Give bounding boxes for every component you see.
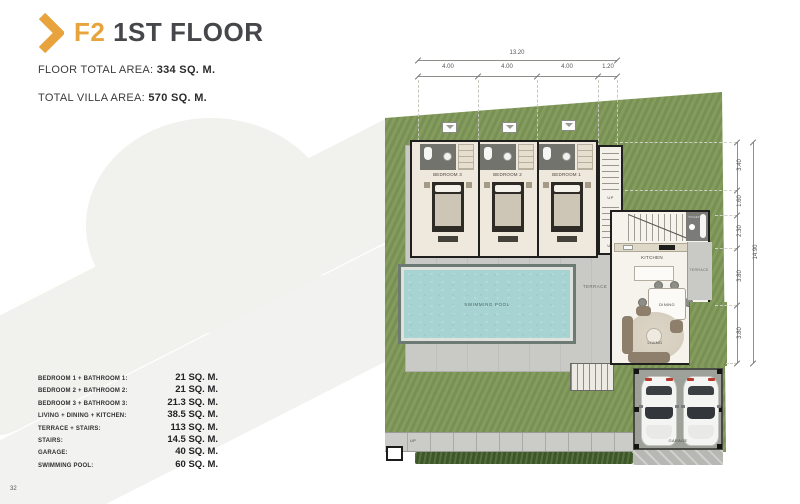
dim-segment: 4.00 [428, 64, 468, 70]
guide-line [715, 305, 737, 306]
bench [438, 236, 458, 242]
guide-line [715, 248, 737, 249]
area-label: SWIMMING POOL: [38, 463, 93, 469]
post [717, 369, 722, 374]
dim-tick [734, 360, 740, 366]
rear-window [688, 386, 714, 395]
bathroom-2 [480, 144, 516, 170]
nightstand [543, 182, 549, 188]
sink-icon [443, 152, 452, 161]
dim-line [418, 60, 617, 61]
bed [492, 182, 524, 232]
guide-line [615, 142, 737, 143]
side-mirror [717, 405, 721, 408]
dim-tick [614, 73, 620, 79]
up-label: UP [600, 195, 621, 200]
grass-patch [689, 302, 727, 366]
chevron-right-icon [38, 13, 64, 58]
garage-label: GARAGE [653, 438, 703, 443]
dim-total-height: 14.90 [753, 235, 759, 269]
area-line-value: 570 SQ. M. [148, 92, 207, 104]
dim-line [418, 76, 617, 77]
taillight [645, 378, 652, 381]
sofa [628, 352, 670, 363]
area-label: BEDROOM 1 + BATHROOM 1: [38, 376, 128, 382]
room-bedroom-1: BEDROOM 1 [537, 142, 596, 256]
pool-label: SWIMMING POOL [464, 302, 510, 307]
dim-segment: 4.00 [547, 64, 587, 70]
ac-unit-icon [442, 122, 457, 133]
entry-gate [386, 446, 403, 461]
nightstand [484, 182, 490, 188]
area-label: STAIRS: [38, 438, 63, 444]
table-row: BEDROOM 1 + BATHROOM 1:21 SQ. M. [38, 372, 218, 384]
table-row: BEDROOM 2 + BATHROOM 2:21 SQ. M. [38, 384, 218, 396]
dim-segment: 2.30 [737, 214, 743, 248]
bed [551, 182, 583, 232]
floor-total-area: FLOOR TOTAL AREA: 334 SQ. M. [38, 64, 215, 76]
post [634, 369, 639, 374]
sink-icon [503, 152, 512, 161]
table-row: SWIMMING POOL:60 SQ. M. [38, 459, 218, 471]
kitchen-sink-icon [623, 245, 633, 250]
area-value: 14.5 SQ. M. [167, 434, 218, 445]
closet [577, 144, 593, 170]
driveway [633, 450, 723, 465]
pillow [435, 185, 461, 192]
hedge [415, 452, 633, 464]
table-row: GARAGE:40 SQ. M. [38, 446, 218, 458]
kitchen-island [634, 266, 674, 281]
page-number: 32 [10, 486, 17, 492]
area-value: 21 SQ. M. [175, 372, 218, 383]
bedroom-wing: BEDROOM 3 BEDROOM 2 [410, 140, 598, 258]
area-label: BEDROOM 3 + BATHROOM 3: [38, 401, 128, 407]
sofa [622, 316, 633, 354]
nightstand [526, 182, 532, 188]
taillight [687, 378, 694, 381]
area-label: LIVING + DINING + KITCHEN: [38, 413, 127, 419]
terrace-label: TERRACE [578, 284, 612, 289]
bedroom-label: BEDROOM 1 [537, 172, 596, 177]
pillow [495, 185, 521, 192]
area-label: TERRACE + STAIRS: [38, 426, 101, 432]
sink-icon [689, 224, 695, 230]
area-table: BEDROOM 1 + BATHROOM 1:21 SQ. M. BEDROOM… [38, 372, 218, 471]
toilet-icon [543, 147, 551, 160]
room-bedroom-3: BEDROOM 3 [418, 142, 477, 256]
dim-segment: 1.20 [588, 64, 628, 70]
windshield [645, 407, 673, 419]
bathroom-1 [539, 144, 575, 170]
taillight [708, 378, 715, 381]
guide-line [617, 80, 618, 146]
sink-icon [562, 152, 571, 161]
car-top-view [683, 376, 719, 446]
bench [498, 236, 518, 242]
room-bedroom-2: BEDROOM 2 [478, 142, 537, 256]
ac-unit-icon [502, 122, 517, 133]
stair-cut-line [628, 214, 688, 239]
area-value: 38.5 SQ. M. [167, 409, 218, 420]
area-line-value: 334 SQ. M. [157, 64, 216, 76]
taillight [666, 378, 673, 381]
area-value: 40 SQ. M. [175, 446, 218, 457]
nightstand [466, 182, 472, 188]
dim-segment: 4.00 [487, 64, 527, 70]
interior-staircase [628, 214, 689, 241]
dim-segment: 3.40 [737, 148, 743, 182]
armchair [670, 320, 683, 333]
windshield [687, 407, 715, 419]
car-top-view [641, 376, 677, 446]
bathtub-icon [700, 214, 706, 238]
rear-window [646, 386, 672, 395]
area-value: 60 SQ. M. [175, 459, 218, 470]
kitchen-label: KITCHEN [614, 255, 690, 260]
side-mirror [675, 405, 679, 408]
post [634, 444, 639, 449]
pool-water: SWIMMING POOL [404, 270, 570, 338]
floor-plan: 13.20 4.00 4.00 4.00 1.20 TERRACE SWIMMI… [385, 50, 785, 484]
dim-segment: 3.80 [737, 259, 743, 293]
area-line-label: FLOOR TOTAL AREA: [38, 64, 153, 76]
ac-unit-icon [561, 120, 576, 131]
armchair [636, 306, 651, 316]
brochure-page: F2 1ST FLOOR FLOOR TOTAL AREA: 334 SQ. M… [0, 0, 800, 504]
swimming-pool: SWIMMING POOL [398, 264, 576, 344]
up-label: UP [403, 438, 423, 443]
closet [458, 144, 474, 170]
side-mirror [639, 405, 643, 408]
nightstand [585, 182, 591, 188]
bathroom-3 [420, 144, 456, 170]
hood [688, 425, 714, 439]
bedroom-label: BEDROOM 3 [418, 172, 477, 177]
dim-tick [750, 360, 756, 366]
area-value: 21.3 SQ. M. [167, 397, 218, 408]
area-value: 113 SQ. M. [170, 422, 218, 433]
dim-tick [614, 57, 620, 63]
bedroom-label: BEDROOM 2 [478, 172, 537, 177]
area-value: 21 SQ. M. [175, 384, 218, 395]
guide-line [418, 80, 419, 146]
closet [518, 144, 534, 170]
area-line-label: TOTAL VILLA AREA: [38, 92, 145, 104]
floor-code: F2 [74, 17, 105, 47]
table-row: STAIRS:14.5 SQ. M. [38, 434, 218, 446]
floor-title: 1ST FLOOR [113, 17, 263, 47]
area-label: GARAGE: [38, 450, 68, 456]
dim-segment: 1.60 [737, 184, 743, 218]
page-title: F2 1ST FLOOR [74, 17, 263, 48]
table-row: LIVING + DINING + KITCHEN:38.5 SQ. M. [38, 409, 218, 421]
kitchen-counter [614, 243, 688, 252]
terrace-label: TERRACE [686, 268, 712, 272]
guide-line [537, 80, 538, 146]
mattress [495, 194, 521, 226]
bench [557, 236, 577, 242]
table-row: TERRACE + STAIRS:113 SQ. M. [38, 422, 218, 434]
side-mirror [681, 405, 685, 408]
toilet-icon [424, 147, 432, 160]
mattress [554, 194, 580, 226]
room-toilet: TOILET [686, 212, 708, 241]
dim-total-width: 13.20 [477, 50, 557, 56]
villa-total-area: TOTAL VILLA AREA: 570 SQ. M. [38, 92, 207, 104]
mattress [435, 194, 461, 226]
nightstand [424, 182, 430, 188]
bed [432, 182, 464, 232]
dim-segment: 3.80 [737, 316, 743, 350]
post [717, 444, 722, 449]
guide-line [715, 215, 737, 216]
stair-flight [602, 153, 619, 193]
guide-line [625, 190, 737, 191]
stove-icon [659, 245, 675, 250]
area-label: BEDROOM 2 + BATHROOM 2: [38, 388, 128, 394]
outdoor-steps [570, 363, 614, 391]
hood [646, 425, 672, 439]
toilet-icon [484, 147, 492, 160]
guide-line [598, 80, 599, 146]
guide-line [478, 80, 479, 146]
table-row: BEDROOM 3 + BATHROOM 3:21.3 SQ. M. [38, 397, 218, 409]
living-label: LIVING [626, 340, 684, 345]
pillow [554, 185, 580, 192]
